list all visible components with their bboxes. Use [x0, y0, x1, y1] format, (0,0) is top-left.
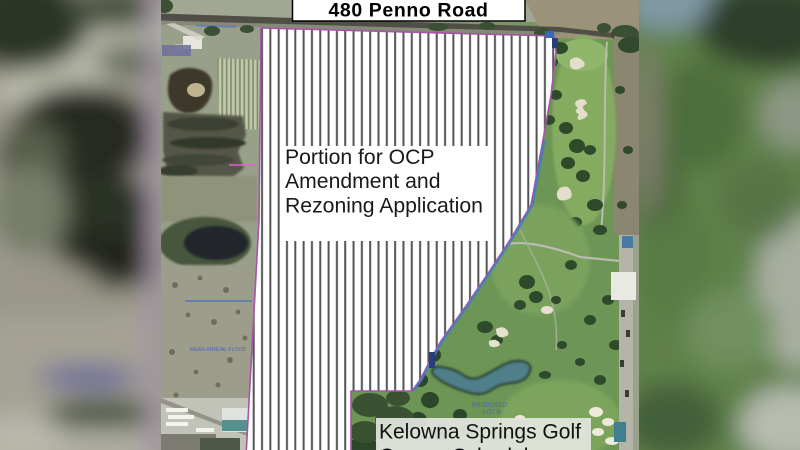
svg-text:MEAN ANNUAL FLOOD: MEAN ANNUAL FLOOD — [190, 347, 247, 353]
svg-text:PROPOSED: PROPOSED — [472, 402, 508, 409]
svg-text:LOT B: LOT B — [483, 409, 501, 416]
svg-text:Kelowna Springs Golf: Kelowna Springs Golf — [379, 421, 581, 444]
svg-text:Course Schedule: Course Schedule — [379, 445, 540, 450]
svg-text:Amendment and: Amendment and — [285, 170, 440, 193]
svg-text:Portion for OCP: Portion for OCP — [285, 146, 435, 169]
svg-text:Rezoning Application: Rezoning Application — [285, 194, 483, 217]
svg-text:480 Penno Road: 480 Penno Road — [328, 0, 488, 22]
